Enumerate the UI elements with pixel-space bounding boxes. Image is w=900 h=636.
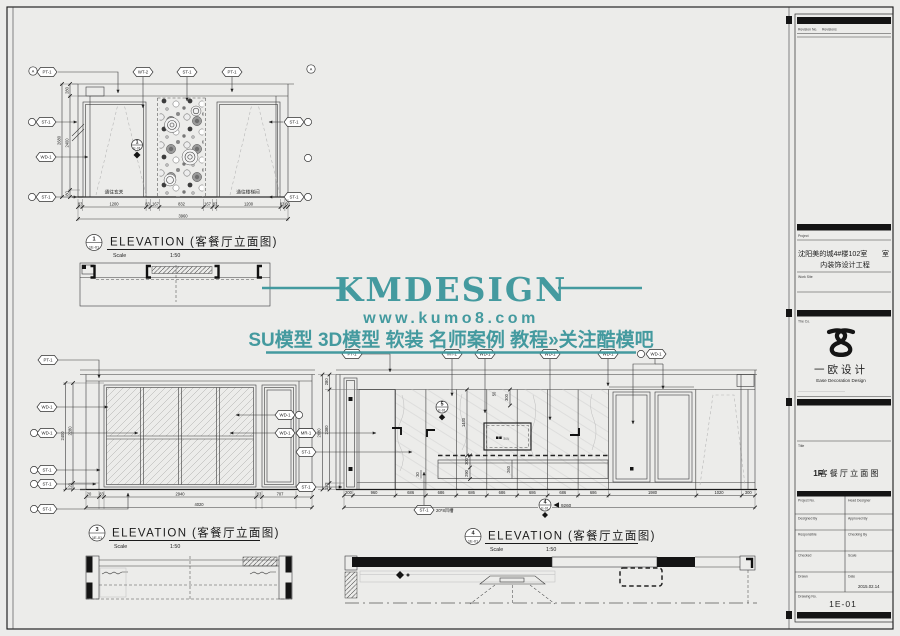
view-title: ELEVATION (客餐厅立面图) [112,526,280,540]
date-value: 2015.02.14 [858,584,880,589]
dim-text: 686 [468,490,476,495]
grid-letter: A [310,67,313,71]
project-name-suffix: 室 [882,249,889,258]
groove-note-text: 20*8凹槽 [436,507,454,514]
dim-text: 707 [277,491,285,496]
finish-tag-label: WD-1 [42,405,54,410]
project-no-label: Project No. [798,499,815,503]
drawing-no-label: Drawing No. [798,595,817,599]
marker-sheet: E-01 [133,146,140,150]
finish-tag-pt1b: PT-1 [222,68,242,77]
finish-tag-wd1-d3r2: WD-1 [275,429,295,438]
ref-bubble [295,411,302,418]
date-label: Date [848,575,855,579]
ref-bubble [28,118,35,125]
finish-tag-st1-right2: ST-1 [284,193,304,202]
dim-text: 2680 [56,135,61,145]
finish-tag-label: ST-1 [182,70,192,75]
scale-field-label: Scale [848,554,857,558]
checked-label: Checked [798,554,811,558]
marker-number: 1 [136,140,139,146]
dim-text: 167 [204,201,212,206]
project-name-line1: 沈阳美的城4#楼102室 [798,249,867,258]
finish-tag-label: ST-1 [289,195,299,200]
company-label: The Co. [798,320,810,324]
dim-text: 83 [99,491,104,496]
responsible-label: Responsible [798,533,817,537]
ref-bubble [637,350,644,357]
finish-tag-label: WT-2 [138,70,149,75]
dim-text: 83 [145,201,150,206]
finish-tag-pt1-d3: PT-1 [38,356,58,365]
dim-text: 280 [64,86,69,94]
finish-tag-wd1-left: WD-1 [36,153,56,162]
scale-value: 1:50 [170,253,180,259]
finish-tag-st1-d3c: ST-1 [37,505,57,514]
scale-label: Scale [114,544,127,550]
view-sheet-ref: 1E-01 [468,538,478,543]
dim-text: 83 [280,201,285,206]
finish-tag-st1-left2: ST-1 [36,193,56,202]
finish-tag-pt1: PT-1 [37,68,57,77]
finish-tag-st1-left: ST-1 [36,118,56,127]
room-label-hall: 通往玄关 [105,189,124,196]
revisions-label: Revisions [822,28,837,32]
grid-bubble-a-right: A [307,65,315,73]
finish-tag-st1-d3a: ST-1 [37,466,57,475]
finish-tag-label: MR-1 [301,431,312,436]
finish-tag-label: WD-1 [41,155,53,160]
dim-text: 686 [529,490,537,495]
dim-text: 686 [499,490,507,495]
finish-tag-wd1-d3r1: WD-1 [275,411,295,420]
marker-sheet: E-01 [541,507,548,511]
scale-value: 1:50 [170,544,180,550]
dim-total: 4020 [194,502,204,507]
marker-number: 4 [544,500,547,506]
sheet-svg: PT-1 WT-2 ST-1 PT-1 A A ST-1 WD-1 ST-1 S… [0,0,900,636]
ref-bubble [30,466,37,473]
finish-tag-label: ST-1 [301,450,311,455]
ref-bubble [30,429,37,436]
view-number: 3 [95,527,98,533]
dim-text: 83 [213,201,218,206]
project-name-line2: 内装饰设计工程 [820,260,870,269]
dim-text: 200 [345,490,353,495]
dim-text: 83 [257,491,262,496]
finish-tag-label: ST-1 [41,195,51,200]
revision-no-label: Revision No. [798,28,817,32]
dim-total: 9260 [561,503,572,508]
finish-tag-label: ST-1 [42,468,52,473]
title-label: Title [798,444,804,448]
finish-tag-label: WD-1 [651,352,663,357]
niche-label: 80N [504,437,511,441]
view-title: ELEVATION (客餐厅立面图) [110,235,278,249]
grid-letter: A [32,69,35,73]
dim-text: 300 [504,393,509,401]
finish-tag-label: PT-1 [42,70,52,75]
dim-text: 1200 [244,201,254,206]
logo-chinese-name: 一欧设计 [814,363,868,376]
head-designer-label: Head Designer [848,499,871,503]
dim-text: 2400 [60,431,65,441]
finish-tag-label: PT-1 [227,70,237,75]
finish-tag-label: ST-1 [41,120,51,125]
room-label-stair: 通往楼梯间 [236,189,260,196]
drawn-label: Drawn [798,575,808,579]
dim-text: 83 [78,201,83,206]
view-title: ELEVATION (客餐厅立面图) [488,529,656,543]
dim-text: 2680 [317,428,322,438]
finish-tag-st1: ST-1 [177,68,197,77]
finish-tag-label: ST-1 [301,485,311,490]
dim-text: 167 [152,201,160,206]
dim-text: 1200 [109,201,119,206]
project-label: Project [798,234,809,238]
dim-text: 260 [506,465,511,473]
dim-text: 832 [178,201,186,206]
marker-sheet: E-01 [438,409,445,413]
designed-by-label: Designed By [798,517,818,521]
grid-bubble-a-left: A [29,67,37,75]
dim-text: 2380 [324,425,329,435]
dim-text: 280 [324,378,329,386]
dim-text: 300 [464,457,469,465]
ref-bubble [30,480,37,487]
finish-tag-label: ST-1 [289,120,299,125]
dim-text: 20 [87,491,92,496]
finish-tag-label: ST-1 [42,507,52,512]
dim-total: 3960 [178,213,188,218]
ref-bubble [304,193,311,200]
ref-bubble [304,154,311,161]
dim-text: 686 [590,490,598,495]
finish-tag-st1-d3b: ST-1 [37,480,57,489]
scale-label: Scale [113,253,126,259]
dim-text: 1020 [714,490,724,495]
finish-tag-wt2: WT-2 [133,68,153,77]
ref-bubble [304,118,311,125]
ref-bubble [28,193,35,200]
dim-text: 686 [407,490,415,495]
dim-text: 50 [492,391,497,396]
dim-text: 960 [371,490,379,495]
dim-text: 60 [285,201,290,206]
finish-tag-label: WD-1 [42,431,54,436]
watermark-brand: KMDESIGN [335,270,568,309]
view-number: 1 [92,236,95,242]
dim-text: 120 [67,482,72,490]
scale-value: 1:50 [546,547,556,553]
view-sheet-ref: 1E-01 [92,535,102,540]
dim-text: 2280 [67,426,72,436]
dim-text: 1430 [461,417,466,427]
dim-text: 30 [415,472,420,477]
dim-text: 130 [324,482,329,490]
ref-bubble [30,505,37,512]
dim-text: 80 [64,191,69,196]
approved-by-label: Approved By [848,517,868,521]
finish-tag-wd1-d3a: WD-1 [37,403,57,412]
finish-tag-label: WD-1 [280,431,292,436]
logo-english-name: Ease Decoration Design [816,378,866,383]
marker-number: 5 [441,402,444,408]
finish-tag-mr1-d4b: MR-1 [296,429,316,438]
dim-text: 686 [438,490,446,495]
finish-tag-mr1-d4: ST-1 [296,448,316,457]
dim-text: 1980 [648,490,658,495]
watermark-tagline: SU模型 3D模型 软装 名师案例 教程»关注酷模吧 [248,328,653,351]
finish-tag-label: WD-1 [280,413,292,418]
cad-sheet: PT-1 WT-2 ST-1 PT-1 A A ST-1 WD-1 ST-1 S… [0,0,900,636]
finish-tag-wd1-d3b: WD-1 [37,429,57,438]
dim-text: 300 [745,490,753,495]
view-sheet-ref: 1E-01 [89,244,99,249]
checking-by-label: Checking By [848,533,867,537]
worksite-label: Work Site [798,275,813,279]
dim-text: 686 [559,490,567,495]
scale-label: Scale [490,547,503,553]
dim-text: 2940 [175,491,185,496]
finish-tag-st1-d4b: ST-1 [296,483,316,492]
dim-text: 2400 [64,138,69,148]
finish-tag-label: ST-1 [419,508,429,513]
sheet-title: 客餐厅立面图 [819,468,880,478]
finish-tag-st1-right: ST-1 [284,118,304,127]
dim-text: 290 [464,469,469,477]
finish-tag-label: ST-1 [42,482,52,487]
finish-tag-label: PT-1 [43,358,53,363]
drawing-no-value: 1E-01 [829,599,857,609]
watermark-url: www.kumo8.com [362,310,539,327]
